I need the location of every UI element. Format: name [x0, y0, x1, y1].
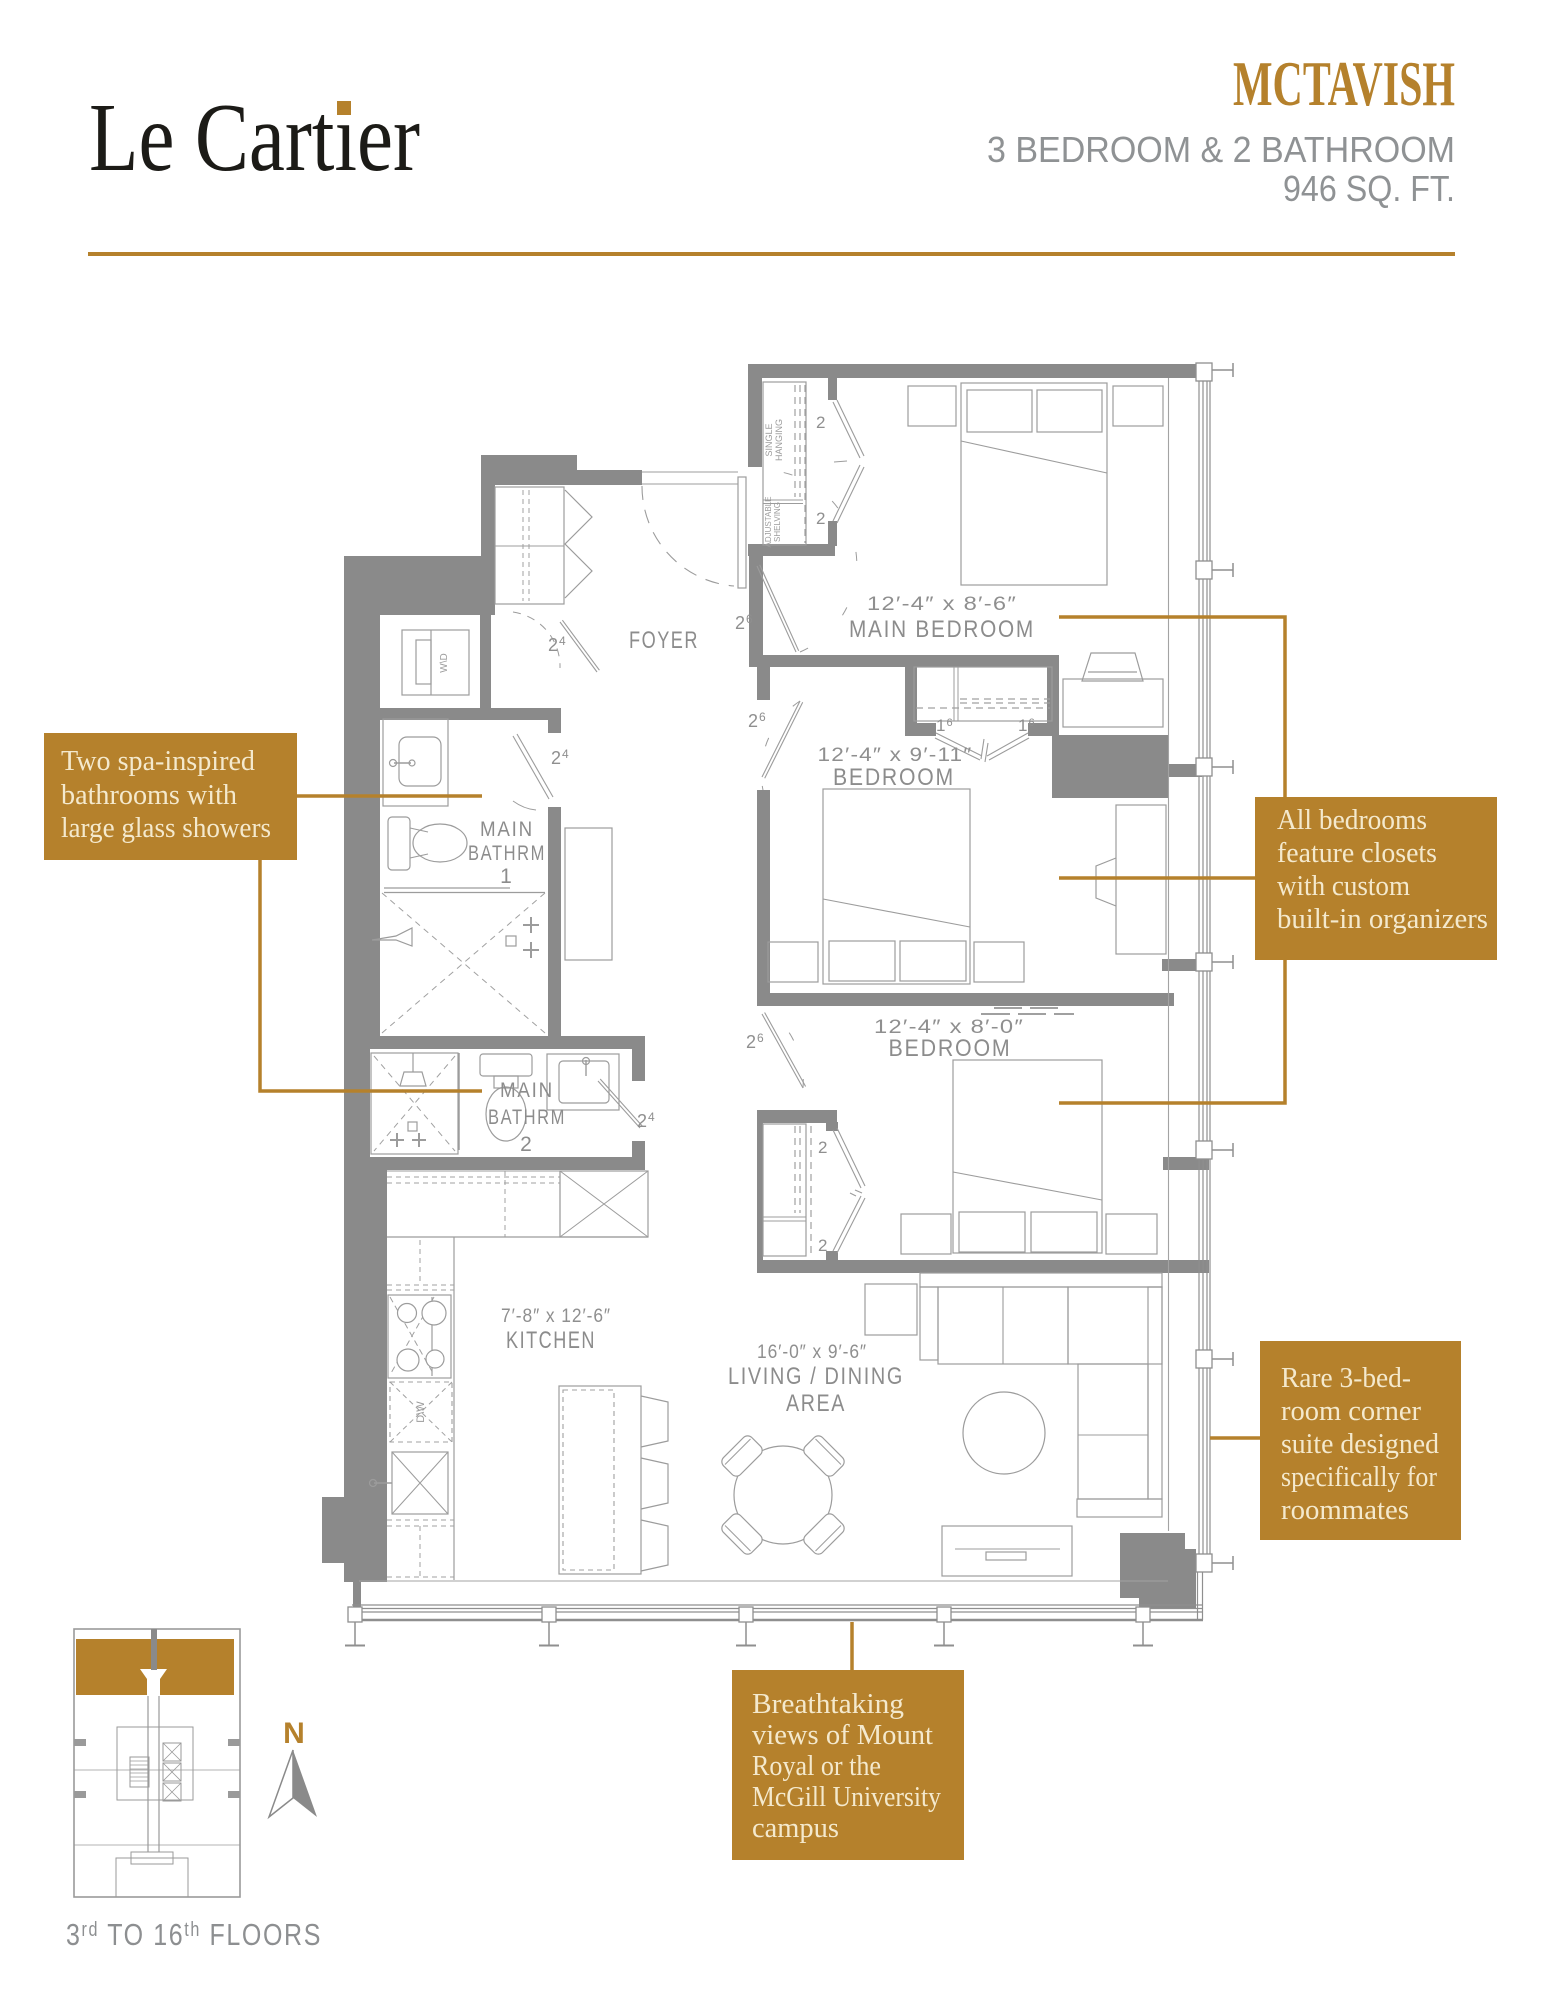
svg-text:W\D: W\D	[439, 653, 450, 672]
svg-text:All bedrooms: All bedrooms	[1277, 804, 1427, 836]
svg-text:LIVING / DINING: LIVING / DINING	[728, 1363, 904, 1390]
svg-text:BATHRM: BATHRM	[468, 842, 546, 865]
svg-text:2: 2	[816, 509, 826, 528]
svg-text:room corner: room corner	[1281, 1395, 1421, 1427]
svg-text:2: 2	[818, 1236, 828, 1255]
svg-text:MAIN BEDROOM: MAIN BEDROOM	[849, 616, 1035, 643]
svg-text:FOYER: FOYER	[629, 627, 699, 654]
svg-text:2: 2	[816, 413, 826, 432]
svg-text:12′-4″ x 9′-11″: 12′-4″ x 9′-11″	[818, 745, 973, 766]
svg-text:views of Mount: views of Mount	[752, 1719, 933, 1751]
svg-text:KITCHEN: KITCHEN	[506, 1327, 596, 1354]
svg-text:BATHRM: BATHRM	[488, 1106, 566, 1129]
svg-text:feature closets: feature closets	[1277, 837, 1437, 869]
svg-text:Rare 3-bed-: Rare 3-bed-	[1281, 1362, 1411, 1394]
svg-text:D\W: D\W	[415, 1401, 427, 1423]
svg-text:MAIN: MAIN	[500, 1079, 554, 1102]
svg-text:Two spa-inspired: Two spa-inspired	[61, 745, 255, 777]
svg-text:2: 2	[818, 1138, 828, 1157]
svg-text:Le Cartıer: Le Cartıer	[89, 84, 420, 191]
svg-text:bathrooms with: bathrooms with	[61, 779, 237, 811]
svg-text:MAIN: MAIN	[480, 818, 534, 841]
svg-text:AREA: AREA	[786, 1390, 846, 1417]
svg-text:SINGLE: SINGLE	[764, 423, 774, 456]
svg-text:built-in organizers: built-in organizers	[1277, 903, 1488, 935]
svg-text:large glass showers: large glass showers	[61, 812, 271, 844]
svg-text:with custom: with custom	[1277, 870, 1410, 902]
svg-text:specifically for: specifically for	[1281, 1461, 1437, 1493]
svg-text:N: N	[283, 1717, 305, 1750]
svg-text:suite designed: suite designed	[1281, 1428, 1439, 1460]
svg-text:SHELVING: SHELVING	[773, 502, 782, 542]
svg-text:12′-4″ x 8′-6″: 12′-4″ x 8′-6″	[867, 594, 1017, 615]
svg-text:roommates: roommates	[1281, 1494, 1409, 1526]
svg-text:McGill University: McGill University	[752, 1781, 941, 1813]
svg-text:ADJUSTABLE: ADJUSTABLE	[764, 497, 773, 548]
svg-text:HANGING: HANGING	[774, 419, 784, 461]
svg-text:2: 2	[520, 1133, 534, 1156]
svg-text:1: 1	[500, 865, 514, 888]
svg-text:7′-8″ x 12′-6″: 7′-8″ x 12′-6″	[501, 1306, 611, 1327]
svg-text:946 SQ. FT.: 946 SQ. FT.	[1283, 168, 1455, 209]
svg-text:16′-0″ x 9′-6″: 16′-0″ x 9′-6″	[757, 1342, 867, 1363]
svg-text:BEDROOM: BEDROOM	[833, 764, 955, 791]
svg-text:3 BEDROOM & 2 BATHROOM: 3 BEDROOM & 2 BATHROOM	[987, 129, 1455, 170]
svg-text:BEDROOM: BEDROOM	[889, 1035, 1012, 1062]
svg-text:campus: campus	[752, 1812, 839, 1844]
svg-text:Royal or the: Royal or the	[752, 1750, 881, 1782]
svg-text:MCTAVISH: MCTAVISH	[1233, 48, 1455, 119]
svg-text:Breathtaking: Breathtaking	[752, 1688, 904, 1720]
